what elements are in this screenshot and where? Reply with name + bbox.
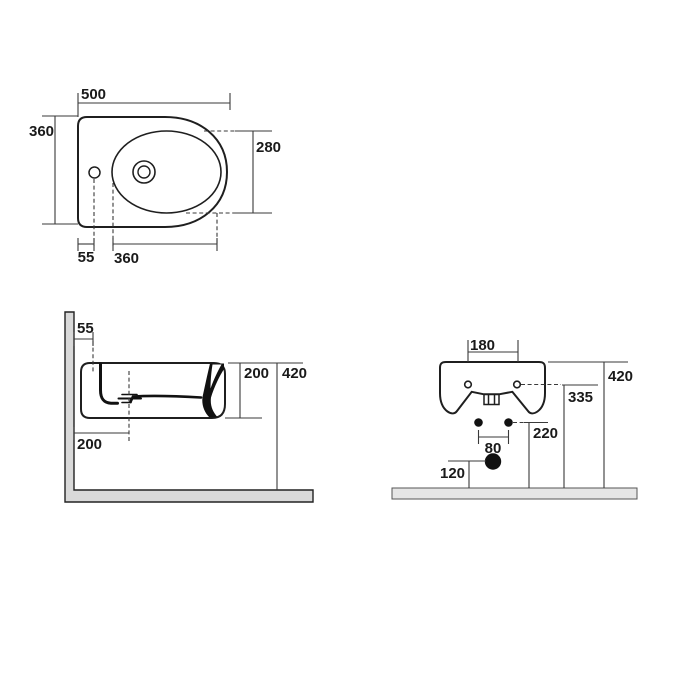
dim-label-rear-80: 80 — [485, 440, 502, 457]
rear-view-floor — [392, 488, 637, 499]
dim-label-rear-120: 120 — [440, 465, 465, 482]
rear-view-dim-inlet-spacing: 80 — [479, 430, 509, 457]
rear-view-trap-detail — [484, 394, 499, 404]
top-view-dim-overall-width: 500 — [78, 86, 230, 117]
rear-view-body-outline — [440, 362, 545, 413]
dim-label-top-500: 500 — [81, 86, 106, 103]
rear-view-inlet-right — [504, 418, 513, 427]
top-view-dim-tap-offset: 55 — [78, 238, 95, 266]
side-view-body-outline — [81, 363, 225, 418]
rear-view-dim-inlet-height: 220 — [524, 423, 558, 489]
dim-label-side-200-right: 200 — [244, 365, 269, 382]
dim-label-rear-335: 335 — [568, 389, 593, 406]
dim-label-top-360-depth: 360 — [29, 123, 54, 140]
rear-view-fixing-hole-right — [514, 381, 521, 388]
dim-label-rear-220: 220 — [533, 425, 558, 442]
top-view-dim-overall-depth: 360 — [29, 116, 78, 224]
side-view-dim-drain-from-wall: 200 — [74, 427, 129, 453]
rear-view-dim-waste-height: 120 — [440, 461, 486, 488]
dim-label-top-280: 280 — [256, 139, 281, 156]
rear-view-dim-fixing-spacing: 180 — [468, 337, 518, 362]
dim-label-side-420: 420 — [282, 365, 307, 382]
rear-view: 180 420 335 220 80 — [392, 337, 637, 499]
dim-label-side-55: 55 — [77, 320, 94, 337]
side-view: 55 200 200 420 — [65, 312, 313, 502]
dim-label-rear-420: 420 — [608, 368, 633, 385]
side-view-dim-tap-from-wall: 55 — [74, 320, 94, 346]
top-view: 500 360 55 360 280 — [29, 86, 281, 267]
bidet-technical-drawing: 500 360 55 360 280 — [0, 0, 700, 700]
top-view-dim-bowl-length: 360 — [113, 238, 217, 267]
rear-view-dim-total-height: 420 — [548, 362, 633, 488]
dim-label-rear-180: 180 — [470, 337, 495, 354]
dim-label-top-55: 55 — [78, 249, 95, 266]
top-view-dim-bowl-width: 280 — [235, 131, 281, 213]
dim-label-side-200-bottom: 200 — [77, 436, 102, 453]
drawing-svg: 500 360 55 360 280 — [0, 0, 700, 700]
dim-label-top-360-bowl: 360 — [114, 250, 139, 267]
rear-view-fixing-hole-left — [465, 381, 472, 388]
rear-view-inlet-left — [474, 418, 483, 427]
rear-view-dim-fixing-height: 335 — [562, 385, 598, 488]
side-view-dim-total-height: 420 — [277, 363, 307, 490]
